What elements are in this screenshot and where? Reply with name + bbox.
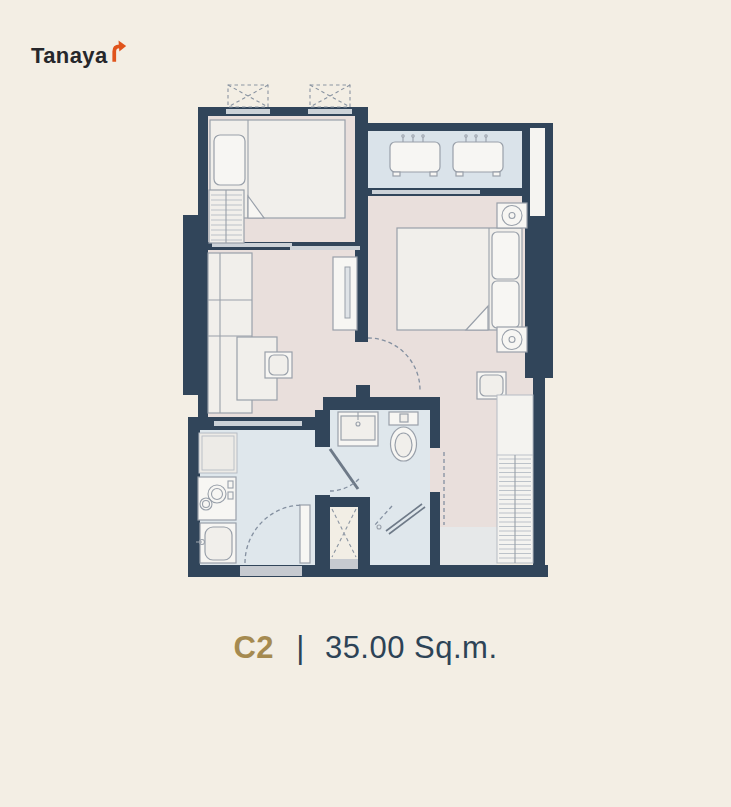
sliding-door-panel [290,246,360,250]
floorplan-page: Tanaya [0,0,731,807]
two-burner-stove [198,477,236,520]
tv-console [333,257,357,330]
entrance-threshold [240,566,302,576]
balcony-sliding-window [428,190,480,194]
kitchen-sink [196,523,236,563]
unit-area: 35.00 Sq.m. [325,630,498,665]
shaft-threshold [330,559,358,569]
master-double-bed [397,228,522,330]
ac-ledge-dashed-boxes [228,85,350,107]
washing-machine [199,433,237,473]
caption-separator: | [296,630,305,665]
toilet [389,412,418,461]
shower-door-opening [430,448,440,492]
window [226,109,270,114]
bedside-table [497,203,527,228]
bedside-table [497,327,527,352]
unit-caption: C2 | 35.00 Sq.m. [0,630,731,666]
kitchen-sliding-door [214,421,302,426]
unit-code: C2 [233,630,274,665]
sliding-door-panel [212,243,292,247]
master-wardrobe-hanging-rail [497,395,533,563]
bathroom-door-opening [315,447,330,495]
floor-plan [0,0,731,807]
coffee-table [265,352,292,378]
column-slot [530,128,545,216]
balcony-sliding-window [372,190,428,194]
wash-basin [338,412,378,446]
bedroom-wardrobe [209,190,244,243]
window [308,109,352,114]
